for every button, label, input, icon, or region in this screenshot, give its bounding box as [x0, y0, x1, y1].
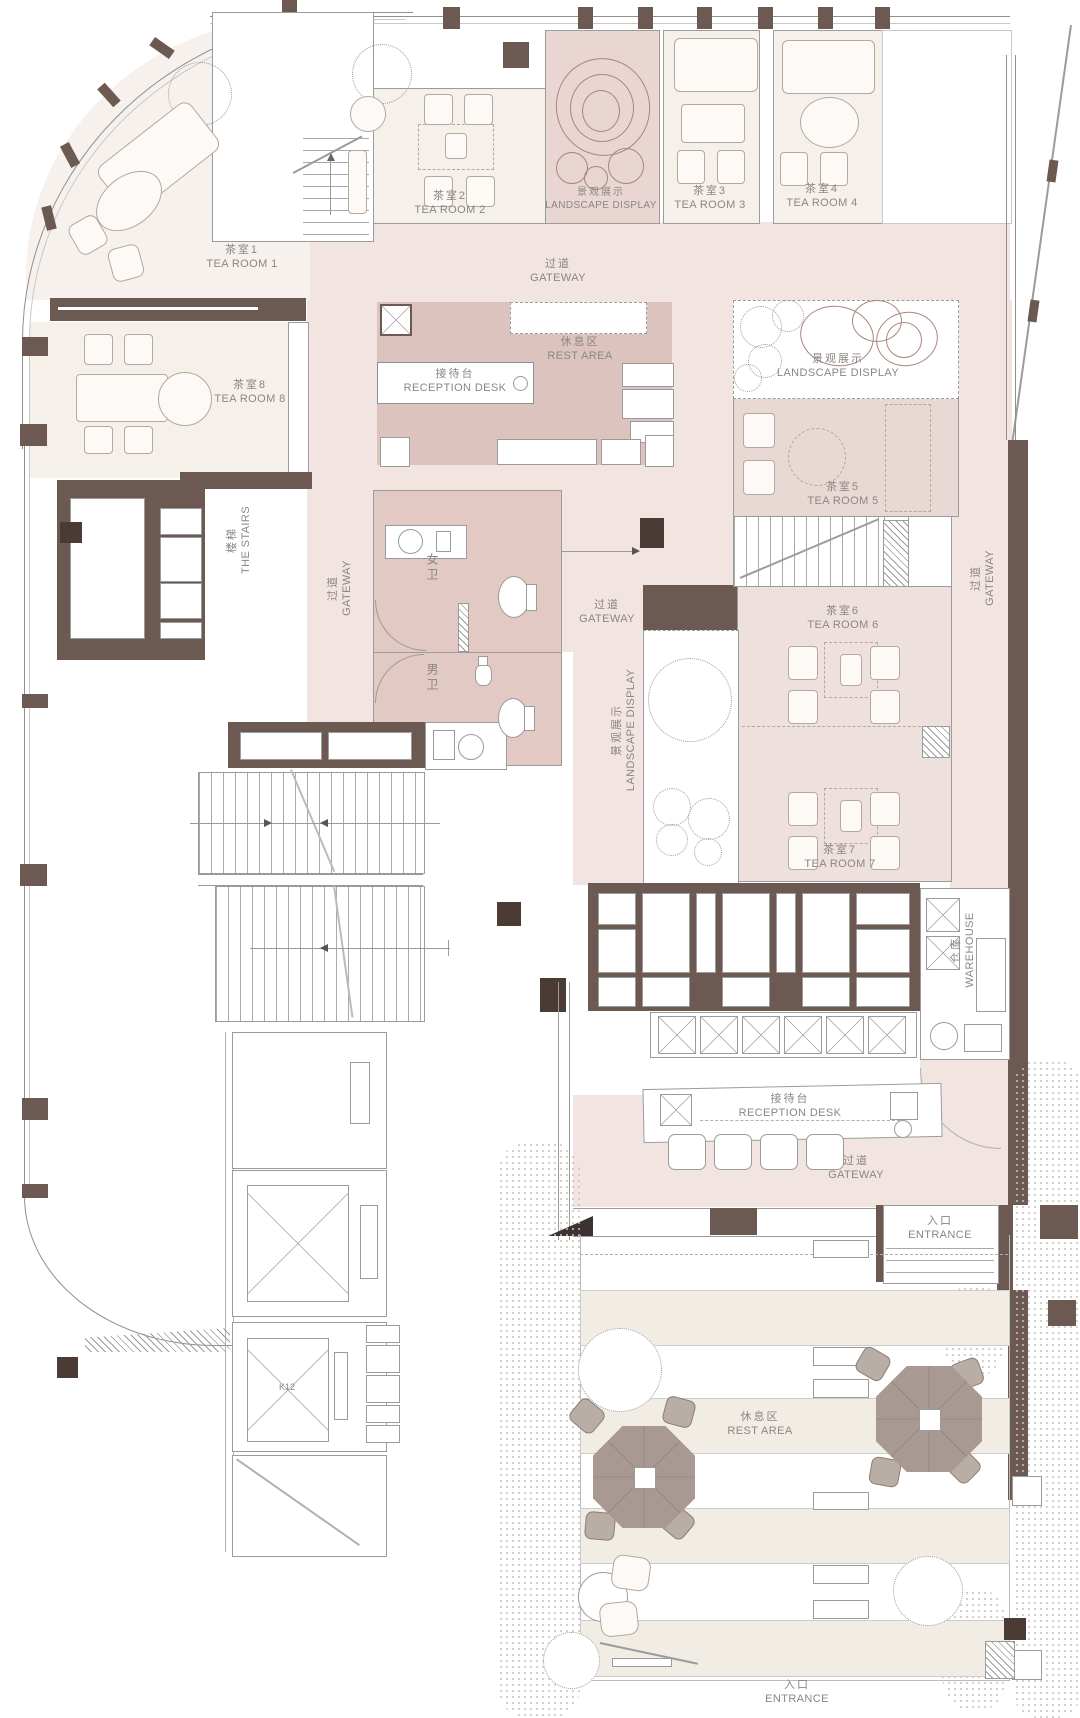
- drain-grate: [985, 1641, 1015, 1679]
- umbrella: [593, 1426, 695, 1528]
- tea-set: [840, 800, 862, 832]
- equipment-box: [366, 1425, 400, 1443]
- column: [22, 1098, 48, 1120]
- kitchen-cell: [856, 893, 910, 925]
- label-entrance-right: 入口 ENTRANCE: [880, 1214, 1000, 1243]
- bar-stool: [760, 1134, 798, 1170]
- label-gateway-right: 过道 GATEWAY: [969, 518, 999, 638]
- label-reception-top: 接待台 RECEPTION DESK: [375, 367, 535, 396]
- left-bottom-curve: [24, 1030, 235, 1346]
- column: [578, 7, 593, 29]
- plant-large: [648, 658, 732, 742]
- cabinet: [622, 363, 674, 387]
- bar-tap: [894, 1120, 912, 1138]
- wash-basin: [398, 529, 423, 554]
- chair: [870, 690, 900, 724]
- chair: [84, 334, 113, 365]
- fixture: [478, 656, 488, 666]
- base-cabinet: [658, 1016, 696, 1054]
- cabinet: [601, 439, 641, 465]
- appliance: [964, 1024, 1002, 1052]
- column-outdoor: [1012, 1476, 1042, 1506]
- column: [697, 7, 712, 29]
- cabinet: [380, 437, 410, 467]
- floor-drain: [380, 304, 412, 336]
- kitchen-cell: [802, 977, 850, 1007]
- chair: [124, 334, 153, 365]
- round-table: [800, 97, 859, 148]
- label-landscape-mid: 景观展示 LANDSCAPE DISPLAY: [610, 640, 640, 820]
- column: [1004, 1618, 1026, 1640]
- base-cabinet: [742, 1016, 780, 1054]
- chair: [820, 152, 848, 186]
- kitchen-cell: [598, 893, 636, 925]
- shelf: [976, 938, 1006, 1012]
- chair: [84, 426, 113, 454]
- column: [60, 522, 82, 543]
- kitchen-cell: [642, 977, 690, 1007]
- corridor-center-low1: [350, 465, 672, 493]
- label-rest-area-outdoor: 休息区 REST AREA: [690, 1410, 830, 1439]
- elevator-door: [334, 1352, 348, 1420]
- plant: [656, 824, 688, 856]
- bench: [813, 1492, 869, 1510]
- column: [1028, 299, 1040, 322]
- plant: [772, 300, 804, 332]
- chair: [788, 690, 818, 724]
- cistern: [526, 584, 537, 611]
- tea-set: [445, 133, 467, 159]
- kitchen-cell: [722, 893, 770, 973]
- column-outdoor: [1012, 1650, 1042, 1680]
- desk-cabinet: [660, 1094, 692, 1126]
- label-tea-room-8: 茶室8 TEA ROOM 8: [180, 378, 320, 407]
- bench: [813, 1379, 869, 1398]
- label-gateway-bottom: 过道 GATEWAY: [796, 1154, 916, 1183]
- label-toilet-women: 女卫: [424, 553, 441, 603]
- escalator-rail: [198, 874, 423, 886]
- pantry-basin: [458, 734, 484, 760]
- equipment-box: [366, 1325, 400, 1343]
- column: [503, 42, 529, 68]
- chair: [124, 426, 153, 454]
- chair: [870, 646, 900, 680]
- equipment-box: [366, 1345, 400, 1373]
- corridor-center: [672, 302, 733, 585]
- plant: [688, 798, 730, 840]
- patio-chair: [598, 1600, 639, 1638]
- stair-arrow-line: [330, 160, 331, 215]
- label-tea-room-4: 茶室4 TEA ROOM 4: [760, 182, 884, 211]
- bench: [348, 150, 367, 214]
- column: [1040, 1205, 1078, 1239]
- label-gateway-left: 过道 GATEWAY: [326, 528, 356, 648]
- chair: [870, 792, 900, 826]
- label-entrance-bottom: 入口 ENTRANCE: [737, 1678, 857, 1707]
- storage-cell: [240, 732, 322, 760]
- column: [443, 7, 460, 29]
- column: [57, 1357, 78, 1378]
- bench-rest: [510, 302, 647, 334]
- equipment-box: [366, 1375, 400, 1403]
- wall-warehouse: [912, 883, 920, 1011]
- column: [497, 902, 521, 926]
- floor-plan: K12: [0, 0, 1080, 1718]
- arrow-line: [190, 823, 440, 824]
- column: [758, 7, 773, 29]
- column: [1048, 1300, 1076, 1326]
- label-reception-bottom: 接待台 RECEPTION DESK: [700, 1092, 880, 1121]
- signage-bar: [612, 1658, 672, 1667]
- column: [638, 7, 653, 29]
- chair: [464, 94, 493, 125]
- arrow: [632, 547, 640, 555]
- label-tea-room-2: 茶室2 TEA ROOM 2: [380, 189, 520, 218]
- elevator-car: [247, 1185, 349, 1302]
- room-divider: [742, 726, 946, 727]
- kitchen-cell: [722, 977, 770, 1007]
- shaft-hatch: [883, 520, 910, 587]
- stool: [350, 96, 386, 132]
- column: [20, 864, 47, 886]
- meander-line: [580, 1254, 1008, 1255]
- partition: [458, 603, 469, 652]
- kitchen-cell: [598, 929, 636, 973]
- storage-cell: [328, 732, 412, 760]
- chair: [743, 413, 775, 448]
- label-gateway-mid: 过道 GATEWAY: [547, 598, 667, 627]
- base-cabinet: [700, 1016, 738, 1054]
- column: [22, 1184, 48, 1198]
- escalator-lower: [215, 886, 425, 1022]
- column: [875, 7, 890, 29]
- urinal: [475, 664, 492, 686]
- kitchen-cell: [802, 893, 850, 973]
- elevator-label: K12: [262, 1382, 312, 1394]
- label-warehouse: 仓库 WAREHOUSE: [949, 875, 979, 1025]
- cabinet: [622, 389, 674, 419]
- equipment-box: [366, 1405, 400, 1423]
- tree: [893, 1556, 963, 1626]
- cabinet-hatch: [922, 726, 950, 758]
- bench: [813, 1240, 869, 1258]
- base-cabinet: [784, 1016, 822, 1054]
- arrow: [320, 819, 328, 827]
- machine-room: [232, 1455, 387, 1557]
- rock: [582, 90, 620, 132]
- long-table: [76, 374, 168, 422]
- column: [818, 7, 833, 29]
- bar-sink: [890, 1092, 918, 1120]
- column: [22, 694, 48, 708]
- arrow-line: [250, 948, 450, 949]
- kitchen-cell: [856, 929, 910, 973]
- round-table: [788, 428, 846, 486]
- plant: [653, 788, 691, 826]
- plant: [694, 838, 722, 866]
- column: [1047, 159, 1059, 182]
- kitchen-cell: [776, 893, 796, 973]
- storage-cell: [70, 498, 145, 639]
- appliance: [930, 1022, 958, 1050]
- stair-arrow: [327, 153, 335, 161]
- plant: [352, 44, 412, 104]
- label-toilet-men: 男卫: [424, 663, 441, 713]
- label-landscape-right: 景观展示 LANDSCAPE DISPLAY: [753, 352, 923, 381]
- patio-chair: [610, 1554, 652, 1593]
- wall-threshold: [710, 1208, 757, 1235]
- chair: [780, 152, 808, 186]
- counter-item: [436, 531, 451, 552]
- landing: [908, 516, 952, 587]
- bench: [813, 1600, 869, 1619]
- chair: [424, 94, 453, 125]
- label-tea-room-6: 茶室6 TEA ROOM 6: [773, 604, 913, 633]
- pantry-sink: [433, 730, 455, 760]
- cabinet: [497, 439, 597, 465]
- sofa: [674, 38, 758, 92]
- storage-cell: [160, 622, 202, 639]
- tree-large: [578, 1328, 662, 1412]
- tea-table: [681, 104, 745, 143]
- label-tea-room-5: 茶室5 TEA ROOM 5: [773, 480, 913, 509]
- column-drain: [640, 518, 664, 548]
- storage-cell: [160, 537, 202, 582]
- cabinet: [645, 435, 674, 467]
- arrow: [320, 944, 328, 952]
- arrow-line: [562, 551, 634, 552]
- wall-slit: [58, 307, 258, 310]
- tree: [543, 1632, 600, 1689]
- right-glass-diagonal: [1012, 25, 1072, 440]
- label-rest-area-top: 休息区 REST AREA: [520, 335, 640, 364]
- chair: [717, 150, 745, 184]
- base-cabinet: [826, 1016, 864, 1054]
- storage-cell: [160, 508, 202, 535]
- label-stairs: 楼梯 THE STAIRS: [225, 465, 255, 615]
- sofa: [782, 40, 875, 94]
- balcony-strip: [882, 30, 1012, 224]
- chair: [788, 792, 818, 826]
- bar-stool: [668, 1134, 706, 1170]
- column: [22, 337, 48, 356]
- chair: [743, 460, 775, 495]
- kitchen-cell: [696, 893, 716, 973]
- kitchen-cell: [856, 977, 910, 1007]
- label-tea-room-7: 茶室7 TEA ROOM 7: [770, 843, 910, 872]
- storage-cell: [160, 583, 202, 619]
- umbrella-table: [919, 1409, 941, 1431]
- bench: [813, 1565, 869, 1584]
- kitchen-cell: [598, 977, 636, 1007]
- right-wall-upper: [1006, 55, 1016, 440]
- label-tea-room-1: 茶室1 TEA ROOM 1: [172, 243, 312, 272]
- column: [20, 424, 47, 446]
- base-cabinet: [868, 1016, 906, 1054]
- cistern: [524, 706, 535, 731]
- chair: [788, 646, 818, 680]
- paving-strip: [580, 1620, 1010, 1677]
- elevator-door: [360, 1205, 378, 1279]
- label-tea-room-3: 茶室3 TEA ROOM 3: [648, 184, 772, 213]
- arrow: [264, 819, 272, 827]
- kitchen-cell: [642, 893, 690, 973]
- umbrella-table: [634, 1467, 656, 1489]
- equipment: [350, 1062, 370, 1124]
- tea-set: [840, 654, 862, 686]
- tick: [448, 940, 449, 956]
- bar-stool: [714, 1134, 752, 1170]
- label-gateway-top: 过道 GATEWAY: [498, 257, 618, 286]
- rock: [608, 148, 644, 184]
- umbrella: [876, 1366, 982, 1472]
- chair: [677, 150, 705, 184]
